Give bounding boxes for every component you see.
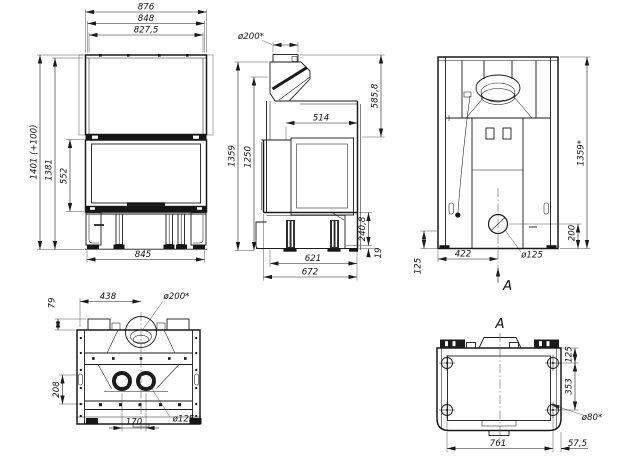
dim-back-outlet-dia: ø125 [520, 251, 543, 261]
dim-front-width-base: 845 [135, 250, 151, 260]
dim-section-foot-top-offset: 125 [565, 346, 575, 362]
dim-front-width-total: 876 [138, 3, 155, 13]
side-view-body [256, 55, 361, 252]
dim-section-foot-dia: ø80* [581, 413, 603, 423]
dim-side-depth-total: 672 [302, 268, 318, 278]
front-view-dimensions: 876 848 827,5 1401 (+100) 1381 552 845 [30, 3, 207, 263]
section-mark-letter: A [502, 278, 512, 294]
dim-plan-flue-dia: ø200* [163, 292, 191, 302]
section-view-dimensions: 125 353 ø80* 761 57,5 [447, 346, 603, 452]
adjustable-foot [545, 355, 561, 371]
plan-view-body [77, 312, 202, 431]
section-view: A 125 353 ø80* [437, 316, 603, 452]
dim-side-depth-inner: 621 [305, 254, 321, 264]
side-view: ø200* 585,8 514 1359 1250 240,8 19 621 6… [228, 32, 385, 281]
dim-plan-duct-spacing: 170 [126, 418, 143, 428]
dim-section-foot-side-offset: 57,5 [568, 439, 587, 449]
dim-front-height-glass: 552 [60, 168, 70, 184]
dim-back-height-total: 1359* [577, 139, 587, 166]
plan-view-dimensions: 79 438 ø200* 208 170 ø125 [48, 292, 195, 432]
adjustable-foot [545, 402, 561, 418]
dim-side-base-height: 240,8 [358, 216, 368, 241]
dim-side-height-total: 1359 [228, 145, 238, 167]
dim-front-width-opening: 827,5 [134, 26, 159, 36]
section-view-body [437, 333, 561, 443]
plan-view: 79 438 ø200* 208 170 ø125 [48, 292, 202, 432]
dim-front-height-total: 1401 (+100) [30, 125, 40, 180]
dim-plan-rim-offset: 79 [48, 298, 58, 309]
dim-plan-duct-dia: ø125 [172, 415, 195, 425]
dim-section-foot-row-spacing: 353 [565, 378, 575, 394]
back-view-body [438, 57, 558, 272]
dim-plan-flue-offset: 438 [100, 292, 117, 302]
section-view-label: A [494, 316, 504, 332]
dim-section-foot-col-spacing: 761 [490, 439, 506, 449]
dim-back-outlet-offset: 422 [455, 250, 471, 260]
dim-front-width-frame: 848 [138, 14, 155, 24]
dim-side-hood-height: 585,8 [371, 83, 381, 108]
back-view-dimensions: 1359* 200 125 422 ø125 A [414, 57, 591, 294]
back-view: 1359* 200 125 422 ø125 A [414, 57, 591, 294]
dim-plan-rear-depth: 208 [52, 381, 62, 398]
dim-side-height-body: 1250 [244, 146, 254, 168]
dim-side-depth-top: 514 [313, 113, 329, 123]
dim-front-height-body: 1381 [45, 159, 55, 181]
dim-back-plinth-height: 125 [414, 258, 424, 274]
dim-side-foot-height: 19 [374, 248, 384, 259]
drawing-sheet: 876 848 827,5 1401 (+100) 1381 552 845 [0, 0, 624, 460]
front-view-body [79, 54, 213, 249]
dim-side-flue-dia: ø200* [237, 32, 265, 42]
technical-drawing: 876 848 827,5 1401 (+100) 1381 552 845 [0, 0, 624, 460]
dim-back-outlet-height: 200 [568, 224, 578, 241]
front-view: 876 848 827,5 1401 (+100) 1381 552 845 [30, 3, 214, 263]
